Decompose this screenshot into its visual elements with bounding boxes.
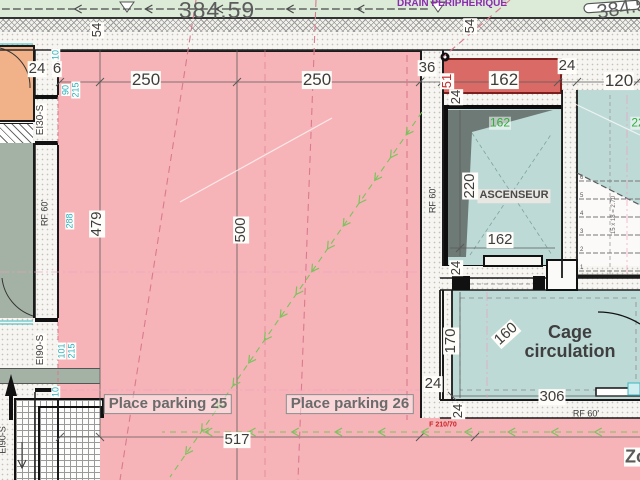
svg-text:1: 1: [580, 265, 584, 271]
svg-text:4: 4: [580, 211, 584, 217]
dim-54-mid: 54: [463, 18, 477, 34]
dim-22-green: 22: [630, 117, 640, 130]
svg-text:2: 2: [580, 247, 584, 253]
zone-label-partial: Zo: [624, 448, 640, 467]
pipe-ref-label: F 210/70: [428, 421, 458, 428]
dim-10-bottom: 10: [51, 386, 60, 398]
dim-24-right: 24: [558, 58, 577, 74]
wall-rating-cage: RF 60': [572, 409, 600, 418]
dim-162-bottom: 162: [486, 232, 513, 248]
elevator-label: ASCENSEUR: [477, 189, 550, 203]
wall-rating-left: RF 60': [40, 199, 49, 227]
dim-24-shaft-top: 24: [449, 89, 463, 105]
parking-25-label: Place parking 25: [104, 394, 232, 414]
floor-plan-canvas: 123456 384.59 384.5 DRAIN PÉRIPHÉRIQUE 5…: [0, 0, 640, 480]
dim-24-cage-left: 24: [424, 376, 443, 392]
dim-54-left: 54: [90, 22, 104, 38]
parking-26-label: Place parking 26: [286, 394, 414, 414]
svg-text:3: 3: [580, 229, 584, 235]
dim-10-top: 10: [51, 49, 60, 61]
door-label-ei90-edge: EI90-S: [0, 425, 8, 455]
door-label-ei90: EI90-S: [36, 334, 47, 367]
level-value: 384.59: [178, 0, 256, 22]
dim-162-green: 162: [489, 117, 511, 130]
dim-306: 306: [538, 389, 565, 405]
door-label-ei30: EI30-S: [36, 104, 47, 137]
dim-162-top: 162: [489, 71, 519, 89]
dim-220: 220: [462, 172, 478, 199]
dim-6: 6: [52, 61, 62, 77]
dim-51: 51: [440, 73, 454, 89]
door-height-215b: 215: [67, 342, 76, 359]
dim-517: 517: [223, 432, 250, 448]
dim-170: 170: [443, 327, 459, 354]
dim-250-a: 250: [131, 71, 161, 89]
dim-36: 36: [418, 60, 437, 76]
dim-288: 288: [65, 212, 74, 229]
wall-rating-shaft: RF 60': [428, 186, 437, 214]
door-height-215a: 215: [71, 81, 80, 98]
dim-120: 120: [604, 72, 634, 90]
svg-text:5: 5: [580, 193, 584, 199]
dim-500: 500: [233, 216, 249, 243]
dim-250-b: 250: [302, 71, 332, 89]
dim-479: 479: [89, 210, 105, 237]
dim-24-topleft: 24: [28, 61, 47, 77]
dim-24-cage-bottom: 24: [451, 403, 465, 419]
cage-label: Cage circulation: [517, 323, 623, 361]
stair-formula: 15 x 18 = 2.70: [611, 195, 617, 235]
drain-label: DRAIN PÉRIPHÉRIQUE: [396, 0, 508, 9]
dim-24-shaft-bottom: 24: [449, 260, 463, 276]
